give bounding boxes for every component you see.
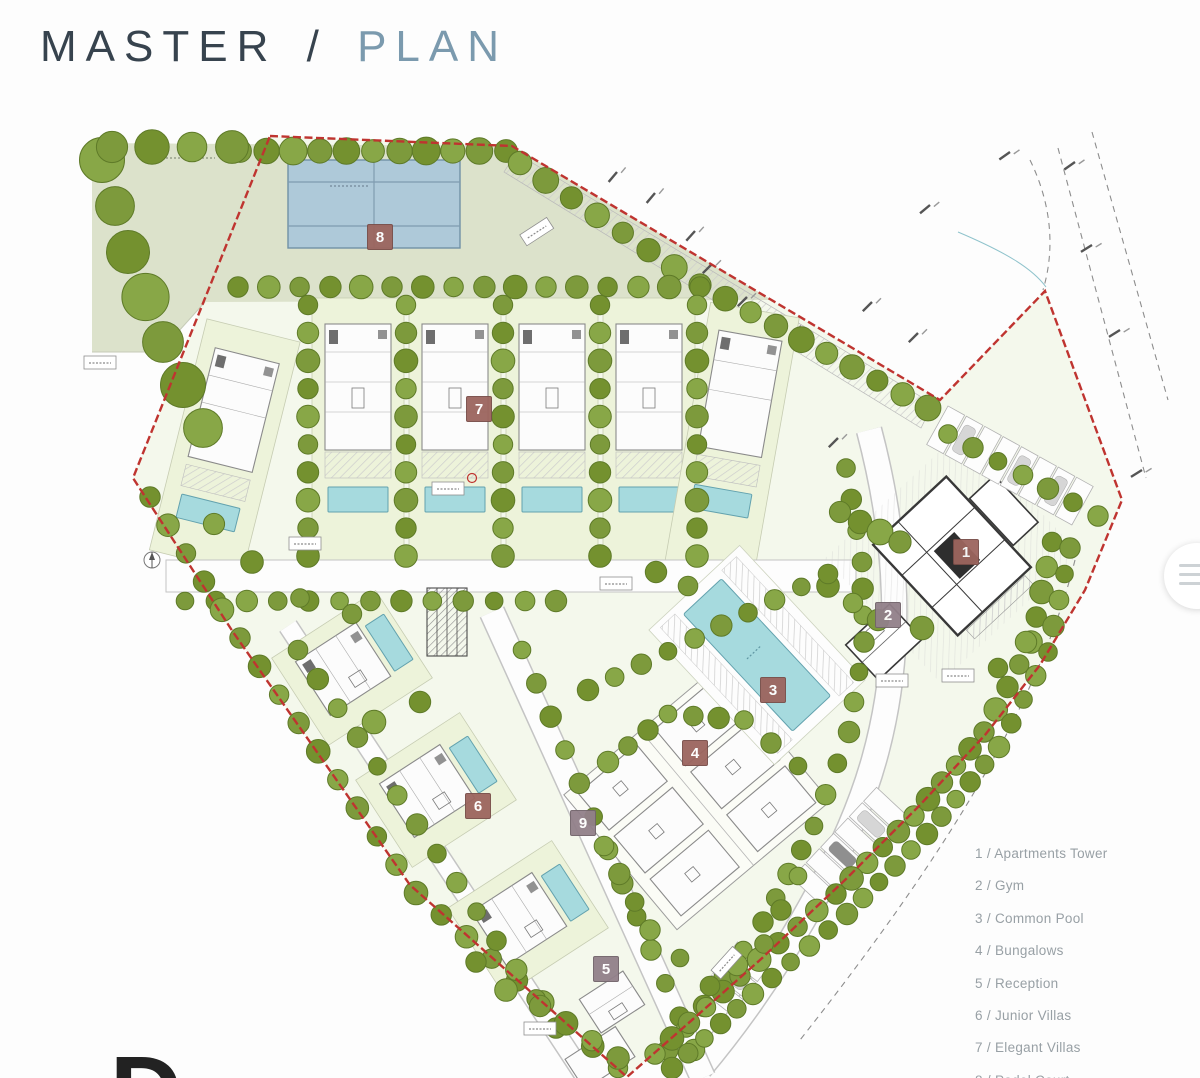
legend-item-2: 2 / Gym xyxy=(975,870,1165,902)
plan-marker-9[interactable]: 9 xyxy=(570,810,596,836)
plan-marker-1[interactable]: 1 xyxy=(953,539,979,565)
legend-item-6: 6 / Junior Villas xyxy=(975,1000,1165,1032)
legend-item-7: 7 / Elegant Villas xyxy=(975,1032,1165,1064)
title-separator: / xyxy=(307,22,328,71)
plan-marker-6[interactable]: 6 xyxy=(465,793,491,819)
legend-item-3: 3 / Common Pool xyxy=(975,903,1165,935)
plan-marker-7[interactable]: 7 xyxy=(466,396,492,422)
legend-item-8: 8 / Padel Court xyxy=(975,1065,1165,1078)
masterplan-page: MASTER / PLAN 123456789 1 / Apartments T… xyxy=(0,0,1200,1078)
legend-item-5: 5 / Reception xyxy=(975,968,1165,1000)
plan-marker-3[interactable]: 3 xyxy=(760,677,786,703)
legend-item-1: 1 / Apartments Tower xyxy=(975,838,1165,870)
legend: 1 / Apartments Tower2 / Gym3 / Common Po… xyxy=(975,838,1165,1078)
title-primary: MASTER xyxy=(40,22,277,71)
plan-marker-8[interactable]: 8 xyxy=(367,224,393,250)
logo-partial: D xyxy=(110,1042,182,1078)
title-accent: PLAN xyxy=(357,22,508,71)
north-arrow-icon xyxy=(144,552,160,568)
page-title: MASTER / PLAN xyxy=(40,22,508,72)
plan-marker-2[interactable]: 2 xyxy=(875,602,901,628)
plan-marker-4[interactable]: 4 xyxy=(682,740,708,766)
legend-item-4: 4 / Bungalows xyxy=(975,935,1165,967)
plan-marker-5[interactable]: 5 xyxy=(593,956,619,982)
